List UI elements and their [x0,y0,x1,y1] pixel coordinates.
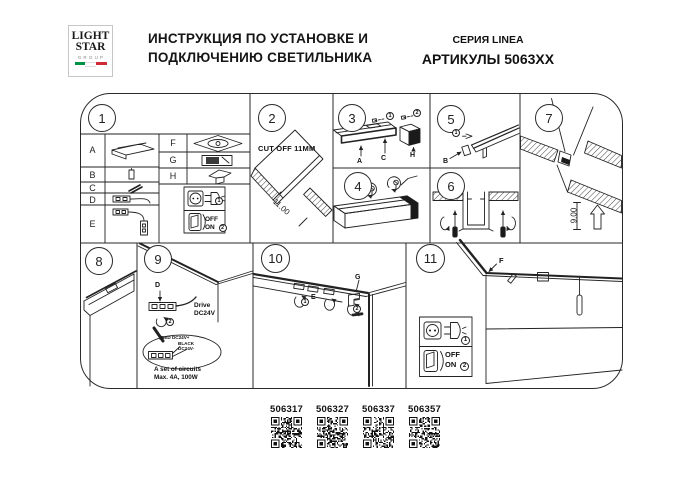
panel-8-art [84,271,136,386]
panel-5-step-1-badge: 1 [452,129,460,137]
cut-off-note: CUT OFF 11MM [258,144,315,153]
panel-5-part-b-label: B [443,158,448,165]
qr-code-506327 [317,417,348,448]
wire-red-label: RED DC24V+ [161,335,189,340]
part-row-g-label: G [159,155,187,165]
part-row-a-label: A [80,145,105,155]
panel-10-step-1-badge: 1 [301,298,309,306]
panel-3-step-2-badge: 2 [413,109,421,117]
page-title-line-2: ПОДКЛЮЧЕНИЮ СВЕТИЛЬНИКА [148,49,372,68]
panel-8-number: 8 [85,247,113,275]
circuits-note-line-2: Max. 4A, 100W [154,374,198,381]
logo-text-star: STAR [69,42,112,53]
part-row-e-label: E [80,219,105,229]
panel-9-step-2-badge: 2 [166,318,174,326]
panel-11-on-label: ON [445,360,456,369]
part-row-b-label: B [80,170,105,180]
panel-4-number: 4 [344,172,372,200]
qr-label-506317: 506317 [262,404,312,415]
series-block: СЕРИЯ LINEA АРТИКУЛЫ 5063XX [407,34,569,67]
panel-7-number: 7 [535,104,563,132]
part-row-f-label: F [159,138,187,148]
panel-5-art [450,125,519,159]
panel-1-number: 1 [88,104,116,132]
panel-11-plug-step-badge: 1 [461,336,470,345]
panel-10-step-2-badge: 2 [353,305,361,313]
panel-3-part-c-label: C [381,155,386,162]
driver-label-line-1: Drive [194,302,210,309]
series-label: СЕРИЯ LINEA [407,34,569,46]
part-row-d-label: D [80,195,105,205]
lightstar-logo: LIGHT STAR GROUP [68,25,113,77]
panel-11-off-label: OFF [445,350,460,359]
italy-flag-icon [75,62,107,65]
panel-10-number: 10 [261,244,290,273]
panel-11-part-f-label: F [499,256,504,265]
wire-black-label-line-2: DC24V- [178,346,194,351]
panel-10-part-e-label: E [311,294,316,301]
panel-3-number: 3 [338,104,366,132]
page-title: ИНСТРУКЦИЯ ПО УСТАНОВКЕ И ПОДКЛЮЧЕНИЮ СВ… [148,30,372,67]
qr-code-506357 [409,417,440,448]
articles-label: АРТИКУЛЫ 5063XX [407,51,569,67]
logo-text-group: GROUP [69,55,112,60]
qr-label-506357: 506357 [400,404,450,415]
qr-label-506327: 506327 [308,404,358,415]
panel-5-number: 5 [437,105,465,133]
qr-label-506337: 506337 [354,404,404,415]
panel-3-part-a-label: A [357,158,362,165]
panel-1-plug-step-badge: 1 [215,197,223,205]
panel-9-part-d-label: D [155,282,160,289]
page-title-line-1: ИНСТРУКЦИЯ ПО УСТАНОВКЕ И [148,30,372,49]
panel-11-number: 11 [416,244,445,273]
instruction-sheet: LIGHT STAR GROUP ИНСТРУКЦИЯ ПО УСТАНОВКЕ… [0,0,700,495]
panel-1-on-label: ON [205,224,215,231]
qr-code-506337 [363,417,394,448]
driver-label-line-2: DC24V [194,310,215,317]
depth-dimension-label: 9.00 [570,204,579,228]
panel-1-switch-step-badge: 2 [219,224,227,232]
part-row-c-label: C [80,183,105,193]
qr-code-506317 [271,417,302,448]
panel-9-number: 9 [144,245,172,273]
part-row-h-label: H [159,171,187,181]
panel-3-part-h-label: H [410,152,415,159]
panel-6-number: 6 [437,172,465,200]
panel-1-off-label: OFF [205,216,218,223]
panel-11-switch-step-badge: 2 [460,362,469,371]
circuits-note-line-1: A set of circuits [154,366,201,373]
panel-3-step-1-badge: 1 [386,112,394,120]
panel-10-art [254,274,406,386]
panel-10-part-g-label: G [355,274,360,281]
panel-2-number: 2 [258,104,286,132]
